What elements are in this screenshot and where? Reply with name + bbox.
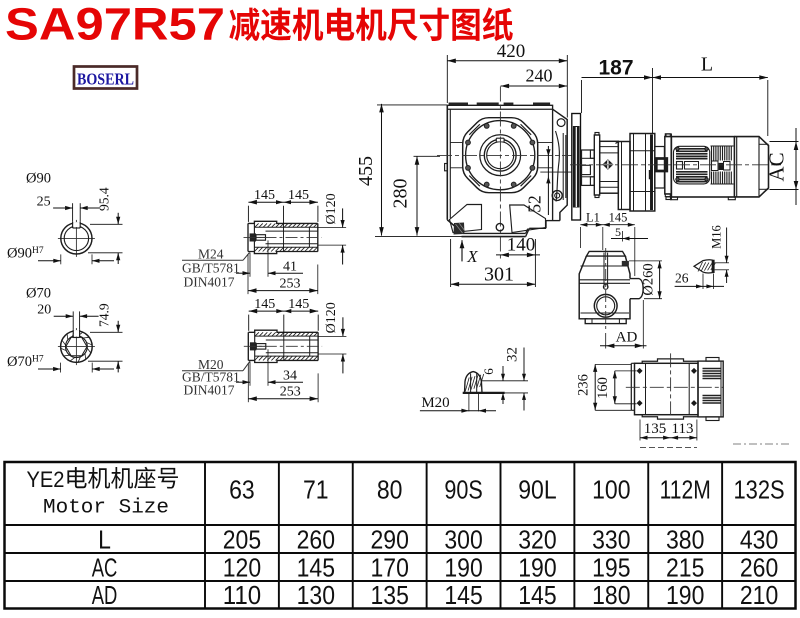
svg-text:290: 290 — [370, 524, 408, 554]
svg-text:112M: 112M — [660, 475, 711, 505]
svg-text:41: 41 — [283, 260, 297, 275]
svg-text:20: 20 — [37, 303, 51, 318]
svg-text:AD: AD — [616, 329, 638, 345]
svg-text:145: 145 — [609, 211, 628, 225]
svg-text:300: 300 — [444, 524, 482, 554]
svg-text:Ø70: Ø70 — [26, 286, 51, 302]
svg-text:215: 215 — [666, 552, 704, 582]
svg-text:95.4: 95.4 — [97, 187, 112, 211]
svg-text:145: 145 — [288, 297, 309, 312]
svg-text:130: 130 — [297, 580, 335, 610]
svg-text:M20: M20 — [421, 395, 449, 411]
svg-text:SA97R57: SA97R57 — [5, 0, 225, 50]
svg-text:AD: AD — [92, 580, 118, 610]
svg-text:25: 25 — [37, 195, 51, 210]
svg-text:160: 160 — [595, 377, 611, 399]
svg-text:Ø90: Ø90 — [26, 171, 51, 187]
svg-text:L: L — [98, 524, 111, 554]
svg-text:145: 145 — [254, 188, 275, 203]
svg-text:320: 320 — [518, 524, 556, 554]
svg-text:135: 135 — [644, 421, 667, 437]
svg-text:301: 301 — [484, 263, 514, 285]
svg-text:280: 280 — [390, 179, 412, 209]
svg-text:330: 330 — [592, 524, 630, 554]
svg-text:74.9: 74.9 — [97, 303, 112, 327]
svg-text:120: 120 — [223, 552, 261, 582]
svg-text:90S: 90S — [444, 475, 482, 505]
svg-text:455: 455 — [355, 156, 377, 186]
svg-text:140: 140 — [507, 235, 536, 256]
svg-text:Ø120: Ø120 — [324, 302, 339, 333]
svg-text:380: 380 — [666, 524, 704, 554]
svg-text:135: 135 — [370, 580, 408, 610]
svg-text:236: 236 — [575, 374, 591, 396]
svg-text:AC: AC — [765, 152, 789, 181]
svg-text:145: 145 — [444, 580, 482, 610]
svg-text:X: X — [466, 247, 478, 266]
svg-text:90L: 90L — [518, 475, 556, 505]
svg-text:80: 80 — [377, 475, 403, 505]
svg-text:260: 260 — [740, 552, 778, 582]
svg-text:190: 190 — [444, 552, 482, 582]
svg-text:26: 26 — [675, 270, 689, 285]
svg-text:5: 5 — [615, 225, 621, 239]
svg-text:M24: M24 — [198, 247, 224, 262]
svg-text:145: 145 — [297, 552, 335, 582]
svg-text:420: 420 — [497, 41, 526, 62]
svg-text:190: 190 — [666, 580, 704, 610]
svg-text:253: 253 — [280, 276, 301, 291]
svg-text:100: 100 — [592, 475, 630, 505]
svg-text:52: 52 — [525, 195, 545, 213]
svg-text:113: 113 — [672, 421, 694, 437]
svg-text:180: 180 — [592, 580, 630, 610]
svg-text:71: 71 — [303, 475, 329, 505]
svg-text:L1: L1 — [586, 211, 600, 225]
svg-text:145: 145 — [518, 580, 556, 610]
svg-text:240: 240 — [526, 66, 553, 86]
svg-text:205: 205 — [223, 524, 261, 554]
svg-text:187: 187 — [598, 57, 633, 80]
svg-text:DIN4017: DIN4017 — [184, 383, 235, 398]
svg-text:Ø120: Ø120 — [324, 193, 339, 224]
svg-text:DIN4017: DIN4017 — [184, 275, 235, 290]
svg-text:AC: AC — [92, 552, 118, 582]
svg-text:BOSERL: BOSERL — [77, 69, 134, 88]
svg-text:190: 190 — [518, 552, 556, 582]
svg-text:6: 6 — [481, 368, 496, 375]
svg-text:253: 253 — [280, 384, 301, 399]
svg-text:132S: 132S — [733, 475, 784, 505]
svg-text:YE2: YE2 — [27, 467, 65, 492]
svg-text:210: 210 — [740, 580, 778, 610]
svg-text:145: 145 — [288, 188, 309, 203]
svg-text:170: 170 — [370, 552, 408, 582]
svg-text:GB/T5781: GB/T5781 — [182, 261, 240, 276]
svg-text:L: L — [701, 54, 713, 76]
svg-text:145: 145 — [254, 297, 275, 312]
svg-text:110: 110 — [223, 580, 261, 610]
svg-text:M16: M16 — [709, 225, 723, 249]
svg-text:63: 63 — [229, 475, 255, 505]
svg-text:Ø260: Ø260 — [640, 263, 656, 295]
svg-text:32: 32 — [505, 347, 521, 362]
svg-text:34: 34 — [283, 369, 297, 384]
svg-text:195: 195 — [592, 552, 630, 582]
svg-text:430: 430 — [740, 524, 778, 554]
svg-text:Motor Size: Motor Size — [43, 497, 169, 520]
svg-text:260: 260 — [297, 524, 335, 554]
